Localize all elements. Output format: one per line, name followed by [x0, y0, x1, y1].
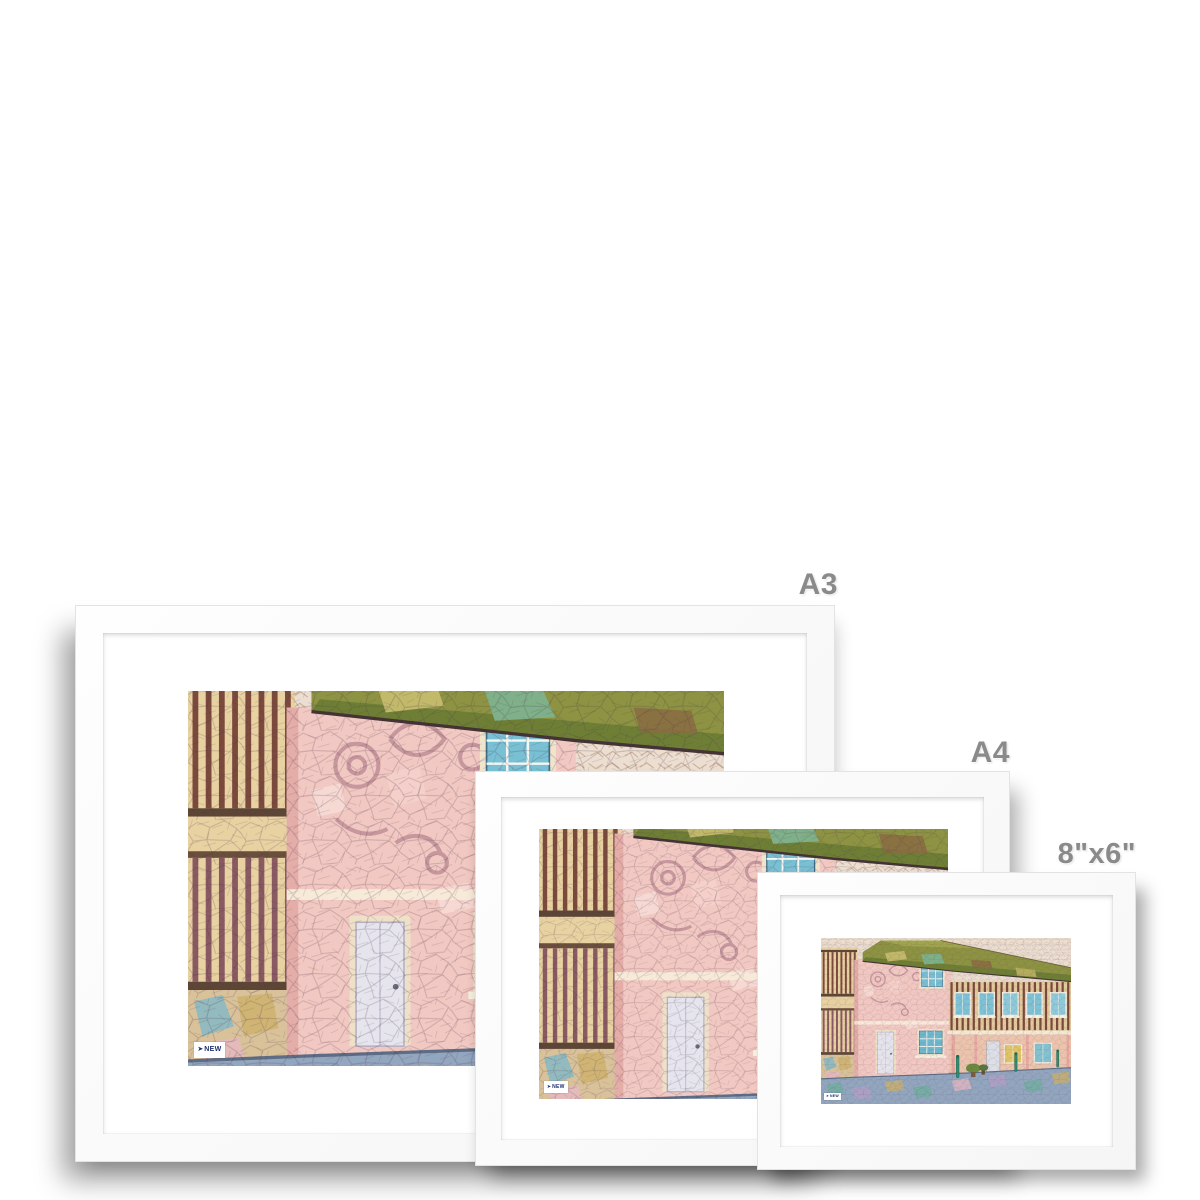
size-label-8x6: 8"x6" [1058, 838, 1136, 871]
watermark-text: NEW [830, 1095, 839, 1099]
artwork-8x6 [821, 938, 1071, 1104]
size-label-a3: A3 [799, 568, 838, 602]
watermark-text: NEW [552, 1085, 565, 1090]
frame-8x6: ➤ NEW [757, 872, 1136, 1170]
watermark-logo-icon: ➤ [197, 1046, 203, 1053]
watermark-text: NEW [204, 1046, 221, 1053]
artist-watermark: ➤ NEW [544, 1081, 568, 1093]
watermark-logo-icon: ➤ [547, 1085, 551, 1090]
watermark-logo-icon: ➤ [826, 1095, 829, 1099]
frame-8x6-print: ➤ NEW [821, 938, 1071, 1104]
artist-watermark: ➤ NEW [194, 1042, 224, 1058]
framed-print-size-mockup[interactable]: A3 A4 8"x6" ➤ NEW ➤ NEW [0, 0, 1200, 1200]
frame-8x6-mat: ➤ NEW [780, 895, 1113, 1147]
size-label-a4: A4 [971, 736, 1010, 770]
artist-watermark: ➤ NEW [824, 1093, 841, 1100]
